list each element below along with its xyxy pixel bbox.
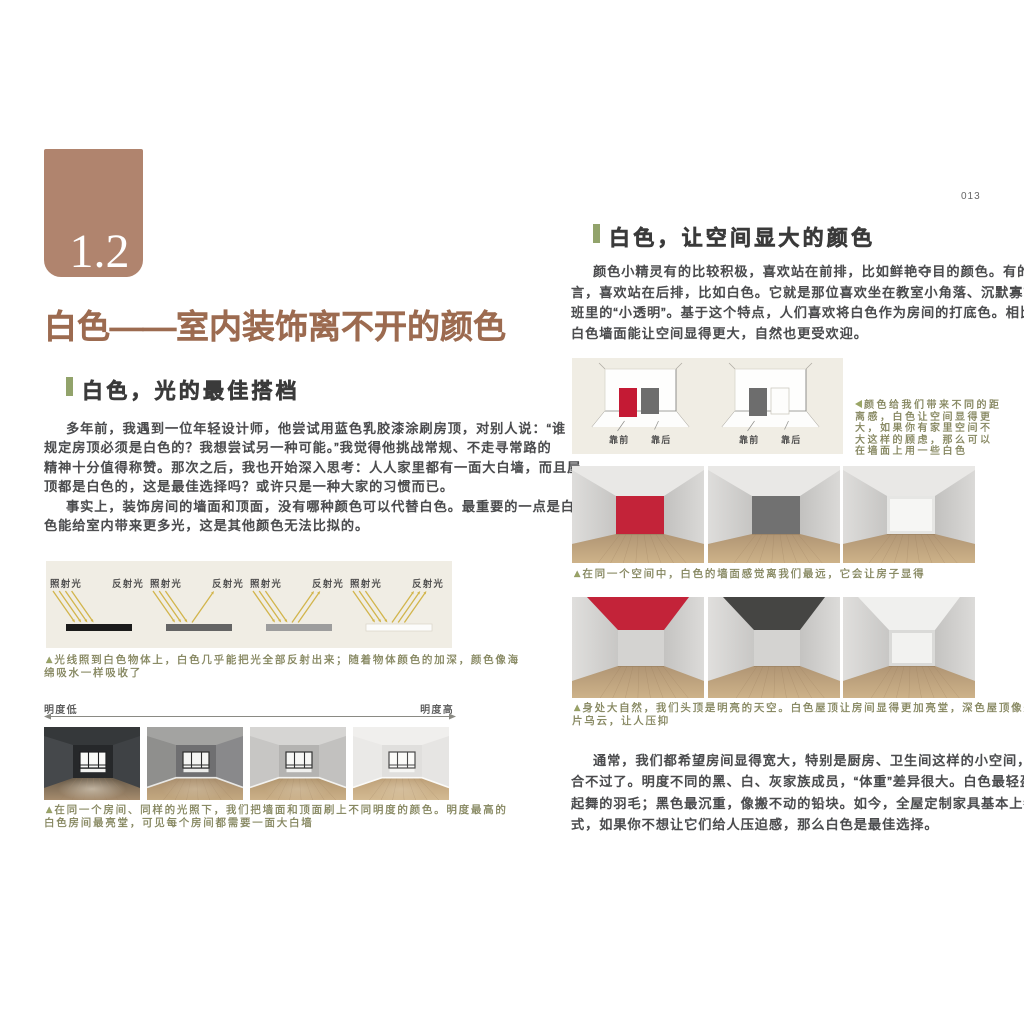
svg-text:靠前: 靠前	[609, 434, 629, 445]
svg-text:照射光: 照射光	[250, 578, 282, 590]
svg-text:照射光: 照射光	[350, 578, 382, 590]
svg-text:反射光: 反射光	[412, 578, 444, 590]
svg-text:靠前: 靠前	[739, 434, 759, 445]
svg-text:反射光: 反射光	[212, 578, 244, 590]
svg-text:靠后: 靠后	[781, 434, 801, 445]
svg-text:靠后: 靠后	[651, 434, 671, 445]
svg-text:照射光: 照射光	[150, 578, 182, 590]
svg-text:反射光: 反射光	[112, 578, 144, 590]
svg-text:反射光: 反射光	[312, 578, 344, 590]
svg-text:照射光: 照射光	[50, 578, 82, 590]
